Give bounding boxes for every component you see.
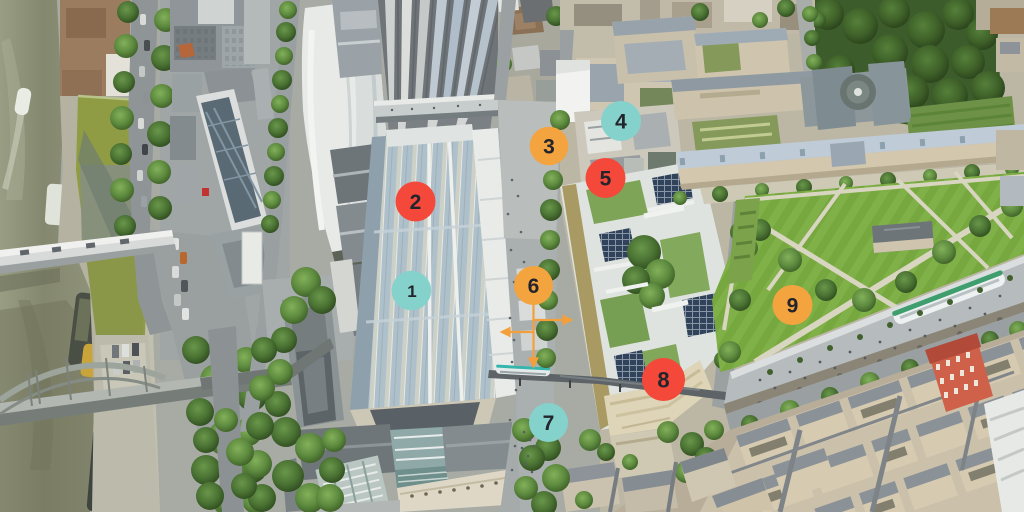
svg-text:9: 9 xyxy=(787,295,799,318)
svg-text:6: 6 xyxy=(528,275,540,298)
svg-text:2: 2 xyxy=(410,191,422,214)
svg-text:5: 5 xyxy=(600,168,612,191)
svg-text:8: 8 xyxy=(657,368,669,393)
svg-text:1: 1 xyxy=(407,282,416,301)
svg-text:4: 4 xyxy=(615,111,627,134)
svg-text:7: 7 xyxy=(543,412,555,435)
svg-text:3: 3 xyxy=(543,136,555,159)
